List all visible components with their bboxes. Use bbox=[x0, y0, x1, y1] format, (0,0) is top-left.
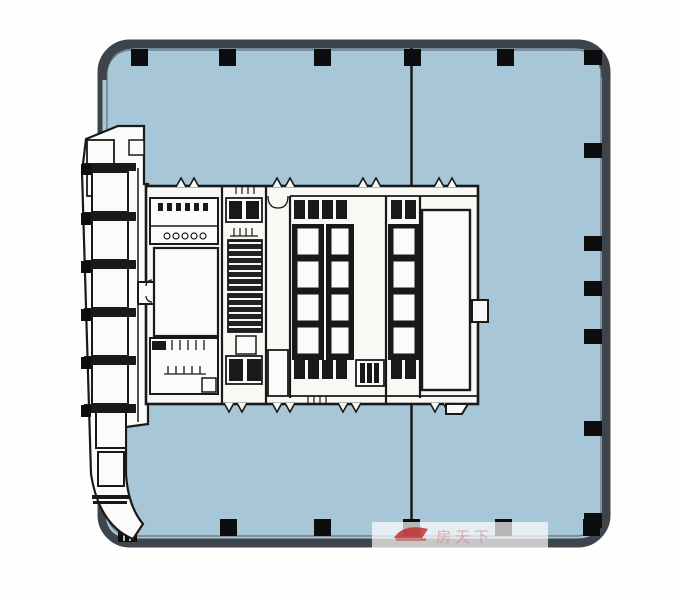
column bbox=[404, 49, 421, 66]
wing-hatch bbox=[93, 501, 127, 504]
column bbox=[583, 519, 600, 536]
column bbox=[220, 519, 237, 536]
column bbox=[584, 50, 602, 65]
wing-room bbox=[92, 364, 128, 404]
elevator-car bbox=[297, 294, 319, 321]
floor-plan-image: 房天下 bbox=[0, 0, 680, 600]
column bbox=[131, 49, 148, 66]
elevator-car bbox=[331, 327, 349, 354]
restroom-lower bbox=[150, 338, 218, 394]
service-shaft bbox=[294, 200, 305, 219]
service-shaft bbox=[336, 200, 347, 219]
wing-edge-column bbox=[81, 357, 91, 369]
service-shaft bbox=[322, 360, 333, 379]
service-shaft bbox=[405, 200, 416, 219]
elevator-car bbox=[297, 327, 319, 354]
core-east-bump bbox=[472, 300, 488, 322]
restroom-upper bbox=[150, 198, 218, 244]
elevator-car bbox=[393, 294, 415, 321]
elevator-car bbox=[393, 228, 415, 255]
elevator-car bbox=[331, 294, 349, 321]
wing-room bbox=[92, 316, 128, 356]
service-unit bbox=[356, 360, 384, 386]
stair-notch bbox=[129, 140, 144, 155]
elevator-car bbox=[393, 327, 415, 354]
service-shaft bbox=[405, 360, 416, 379]
wing-room bbox=[92, 268, 128, 308]
column bbox=[497, 49, 514, 66]
column bbox=[584, 281, 602, 296]
wing-edge-column bbox=[81, 309, 91, 321]
watermark-text: 房天下 bbox=[436, 528, 493, 546]
column bbox=[314, 49, 331, 66]
elevator-car bbox=[331, 228, 349, 255]
wing-separator bbox=[84, 163, 136, 171]
wing-room bbox=[87, 140, 114, 166]
shaft-room bbox=[268, 350, 288, 396]
wing-room bbox=[92, 172, 128, 212]
wing-hatch bbox=[92, 495, 130, 499]
stairwell-upper bbox=[228, 240, 262, 290]
service-shaft bbox=[391, 360, 402, 379]
watermark-logo-underline bbox=[396, 538, 426, 541]
stairwell-lower bbox=[228, 294, 262, 332]
service-shaft bbox=[308, 200, 319, 219]
service-shaft bbox=[391, 200, 402, 219]
watermark: 房天下 bbox=[372, 522, 548, 550]
machine-room bbox=[422, 210, 470, 390]
column bbox=[219, 49, 236, 66]
column bbox=[584, 329, 602, 344]
elevator-car bbox=[331, 261, 349, 288]
service-shaft bbox=[336, 360, 347, 379]
office-room bbox=[154, 248, 218, 336]
wing-edge-column bbox=[81, 405, 91, 417]
wing-room bbox=[96, 412, 126, 448]
service-shaft bbox=[322, 200, 333, 219]
elevator-car bbox=[297, 261, 319, 288]
column bbox=[584, 143, 602, 158]
column bbox=[584, 421, 602, 436]
wing-edge-column bbox=[81, 164, 91, 175]
column bbox=[314, 519, 331, 536]
service-shaft bbox=[308, 360, 319, 379]
elevator-car bbox=[297, 228, 319, 255]
wing-room bbox=[92, 220, 128, 260]
floor-plan-page: 房天下 bbox=[0, 0, 680, 600]
service-core bbox=[138, 178, 488, 414]
elevator-car bbox=[393, 261, 415, 288]
column bbox=[584, 236, 602, 251]
service-shaft bbox=[294, 360, 305, 379]
wing-edge-column bbox=[81, 213, 91, 225]
wing-room bbox=[98, 452, 124, 486]
wing-edge-column bbox=[81, 261, 91, 273]
